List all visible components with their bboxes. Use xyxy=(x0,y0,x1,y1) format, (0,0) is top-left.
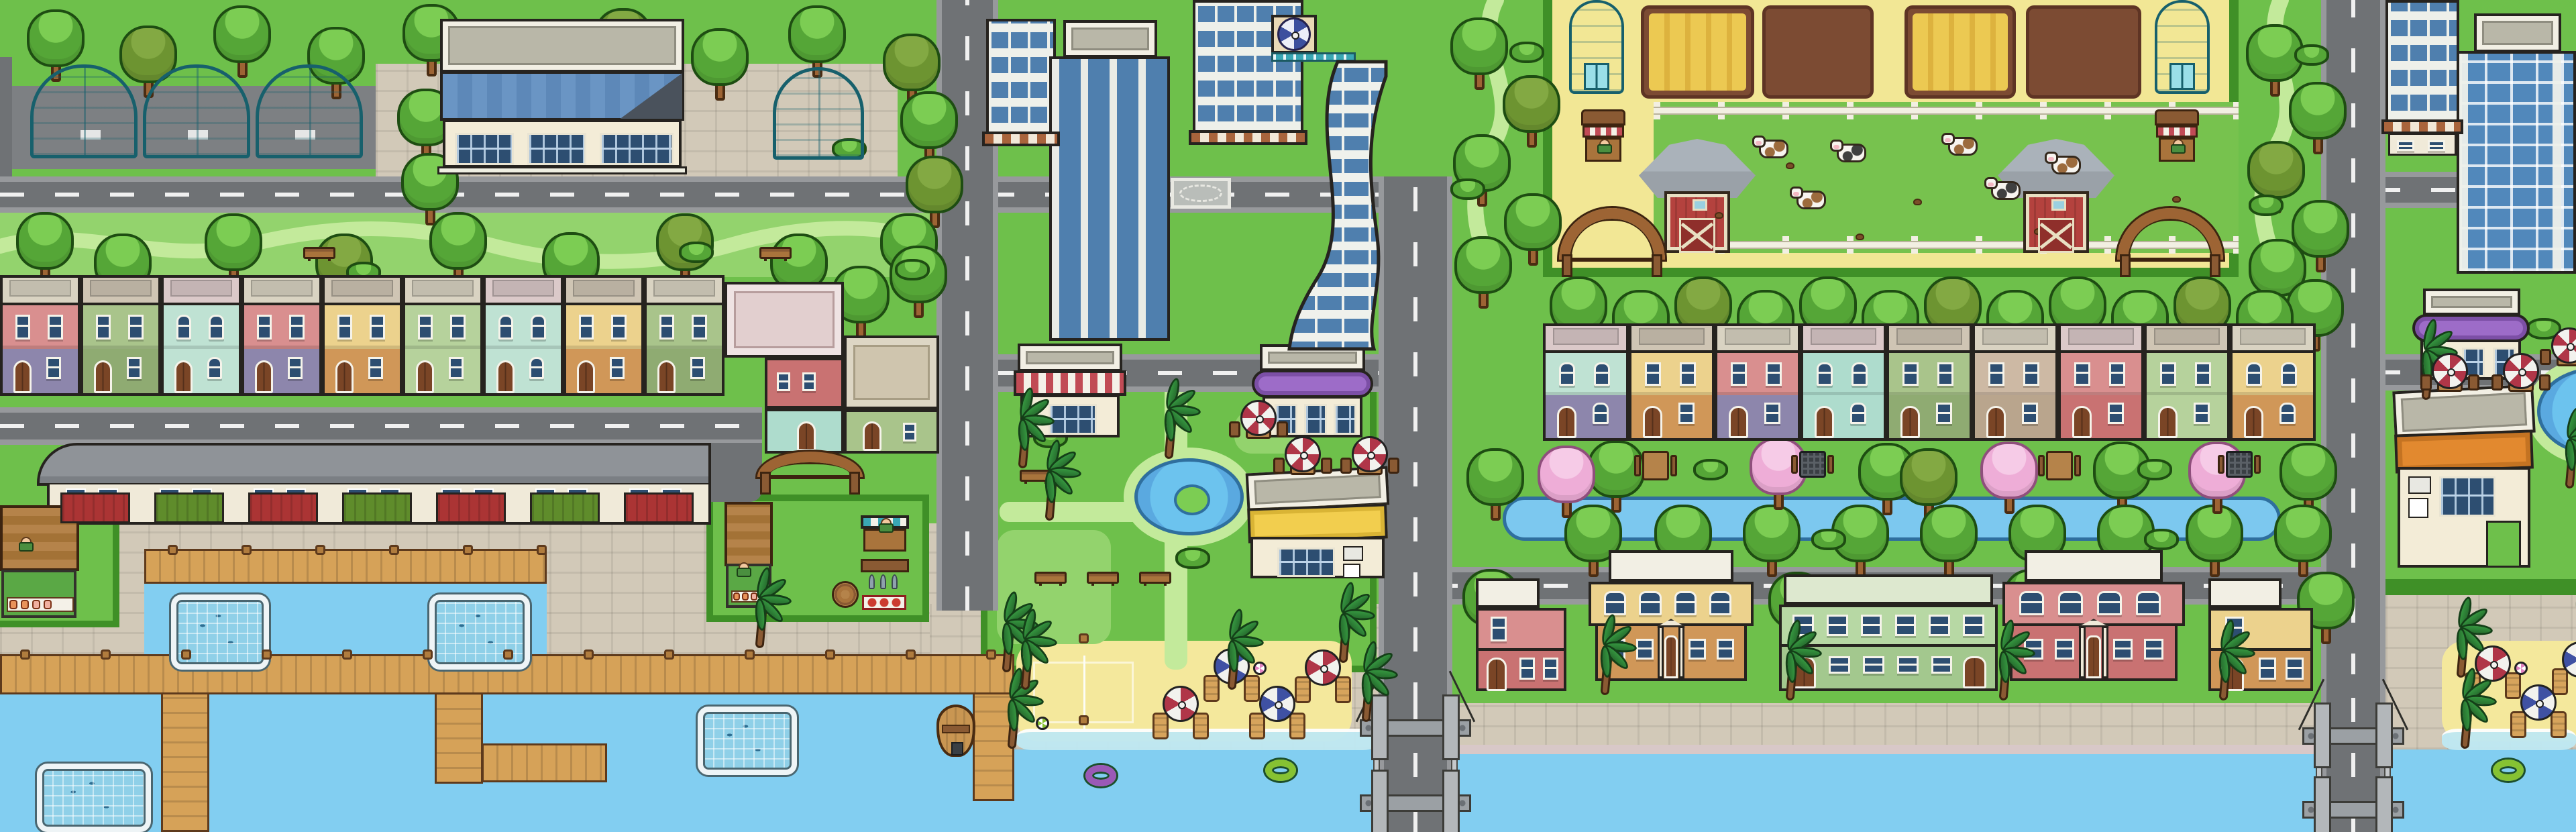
road-residential-west[interactable] xyxy=(0,407,762,445)
tree xyxy=(429,212,487,284)
cherry-tree xyxy=(1980,441,2038,514)
cafe-table[interactable] xyxy=(1273,436,1332,487)
townhouse-east[interactable] xyxy=(1801,323,1886,441)
pier-post xyxy=(20,649,30,660)
tree xyxy=(213,5,271,78)
cafe-umbrella xyxy=(2432,353,2468,389)
fish-pen[interactable] xyxy=(37,764,151,832)
palm-tree xyxy=(1135,389,1202,459)
bridge-pylon xyxy=(1360,794,1471,812)
pier-post xyxy=(423,649,433,660)
pier-post xyxy=(664,649,674,660)
cow-pie xyxy=(2172,196,2181,203)
townhouse-east[interactable] xyxy=(1715,323,1801,441)
townhouse-east[interactable] xyxy=(1972,323,2058,441)
palm-tree xyxy=(2190,631,2257,700)
barrel[interactable] xyxy=(832,581,859,608)
main-tower-sign xyxy=(1063,20,1157,58)
townhouse-east[interactable] xyxy=(2058,323,2144,441)
townhouse-north[interactable] xyxy=(241,275,322,396)
palm-tree xyxy=(2536,419,2576,488)
bench[interactable] xyxy=(303,247,335,259)
beach-ball[interactable] xyxy=(2514,662,2528,675)
bush xyxy=(1811,529,1846,550)
station-plinth xyxy=(437,166,687,174)
pier-post xyxy=(463,545,473,555)
curved-tower[interactable] xyxy=(1268,59,1397,352)
palm-tree xyxy=(2427,608,2494,678)
glass-tower-sign xyxy=(2474,13,2561,52)
warehouse-door[interactable] xyxy=(60,492,130,523)
waterfront-house[interactable] xyxy=(1476,578,1566,691)
bush xyxy=(1693,459,1728,480)
barn-west-door[interactable] xyxy=(1679,218,1715,253)
swim-ring[interactable] xyxy=(1265,760,1296,781)
tree xyxy=(1454,236,1512,309)
bridge-pylon xyxy=(2302,801,2404,819)
main-tower[interactable] xyxy=(1049,56,1170,341)
cow-pie xyxy=(1856,233,1864,240)
glass-canopy-2[interactable] xyxy=(143,64,250,158)
helipad xyxy=(1171,178,1231,209)
cow[interactable] xyxy=(2045,152,2084,178)
cafe-umbrella xyxy=(1352,436,1388,472)
townhouse-north[interactable] xyxy=(80,275,161,396)
bush xyxy=(1175,548,1210,569)
tree xyxy=(900,91,958,164)
tree xyxy=(1503,75,1560,148)
tree xyxy=(890,246,947,318)
roof-terrace-block-b[interactable] xyxy=(844,335,939,409)
swim-ring[interactable] xyxy=(1085,765,1116,786)
cow[interactable] xyxy=(1830,140,1869,166)
umbrella-canopy xyxy=(2520,684,2557,721)
city-map xyxy=(0,0,2576,832)
tree xyxy=(16,212,74,284)
pier-post xyxy=(503,649,513,660)
tree xyxy=(1920,505,1978,577)
greenhouse-tunnel[interactable] xyxy=(2155,0,2210,94)
park-pond xyxy=(1134,458,1244,535)
wheat-field xyxy=(1904,5,2016,99)
bush xyxy=(1450,178,1485,200)
shop-orange[interactable] xyxy=(2394,388,2534,582)
cow-pie xyxy=(1913,199,1922,205)
tree xyxy=(1450,17,1508,90)
palm-tree xyxy=(726,578,793,648)
glass-canopy-3[interactable] xyxy=(256,64,363,158)
vendor-teal-stall xyxy=(879,518,891,533)
cherry-tree xyxy=(1538,446,1595,518)
pier-post xyxy=(241,545,252,555)
pier-finger-2[interactable] xyxy=(435,692,483,784)
office-base-east xyxy=(2388,133,2457,156)
palm-tree xyxy=(1016,451,1083,521)
cafe-umbrella xyxy=(2551,327,2576,364)
station-hall[interactable] xyxy=(443,119,682,168)
station-roof[interactable] xyxy=(440,71,684,121)
picnic-table[interactable] xyxy=(1634,451,1677,480)
palm-tree xyxy=(2431,679,2498,749)
townhouse-north[interactable] xyxy=(161,275,241,396)
bbq-grill[interactable] xyxy=(1791,451,1834,478)
cabbage-plant xyxy=(2034,76,2061,103)
bench[interactable] xyxy=(1034,572,1067,584)
shop-red-sign xyxy=(1018,344,1122,372)
vendor-left-stall xyxy=(19,537,31,552)
office-tower-east[interactable] xyxy=(2385,0,2459,122)
townhouse-north[interactable] xyxy=(563,275,644,396)
pasture-fence-top xyxy=(1654,102,2239,119)
swim-ring[interactable] xyxy=(2493,760,2524,781)
cow-pie xyxy=(1715,212,1723,219)
pier-post xyxy=(906,649,916,660)
glass-tower[interactable] xyxy=(2457,51,2576,274)
tree xyxy=(2274,505,2332,577)
townhouse-east[interactable] xyxy=(2230,323,2316,441)
cow[interactable] xyxy=(1790,187,1829,213)
road-main-west[interactable] xyxy=(0,176,1452,213)
warehouse-door[interactable] xyxy=(154,492,224,523)
palm-tree xyxy=(991,620,1059,690)
bush xyxy=(1509,42,1544,63)
townhouse-east[interactable] xyxy=(2144,323,2230,441)
shop-purple-awning xyxy=(1252,370,1373,398)
bush xyxy=(2249,195,2284,216)
embankment-curb xyxy=(1452,745,2321,754)
cabbage-plant xyxy=(2068,76,2094,103)
bbq-grill[interactable] xyxy=(2218,451,2261,478)
warehouse-door[interactable] xyxy=(436,492,506,523)
townhouse-east[interactable] xyxy=(1886,323,1972,441)
warehouse-door[interactable] xyxy=(530,492,600,523)
pier-finger-2b[interactable] xyxy=(482,743,607,782)
picnic-table[interactable] xyxy=(2038,451,2081,480)
tree xyxy=(1504,193,1562,266)
vendor xyxy=(1597,139,1609,154)
cabbage-plant xyxy=(1770,76,1797,103)
rowboat[interactable] xyxy=(936,705,975,757)
office-awning-1 xyxy=(982,132,1060,146)
palm-tree xyxy=(2546,572,2576,641)
cluster-house-red[interactable] xyxy=(765,358,844,409)
cabbage-plant xyxy=(2101,76,2128,103)
palm-tree xyxy=(1756,631,1823,700)
tree xyxy=(2186,505,2243,577)
wooden-arch-gate[interactable] xyxy=(1559,208,1665,277)
townhouse-north[interactable] xyxy=(402,275,483,396)
bush xyxy=(679,242,714,263)
cabbage-plant xyxy=(1837,76,1864,103)
cafe-table[interactable] xyxy=(2540,327,2576,378)
bench[interactable] xyxy=(1087,572,1119,584)
cow[interactable] xyxy=(1941,133,1980,160)
pier-post xyxy=(262,649,272,660)
office-tower-small[interactable] xyxy=(986,19,1056,134)
office-awning-3 xyxy=(2381,119,2463,134)
warehouse-door[interactable] xyxy=(624,492,694,523)
fish-pen[interactable] xyxy=(429,594,530,670)
warehouse-door[interactable] xyxy=(248,492,318,523)
bush xyxy=(2294,44,2329,66)
farm-stand[interactable] xyxy=(2155,109,2199,162)
pier-post xyxy=(389,545,399,555)
cow[interactable] xyxy=(1752,136,1791,162)
farm-stand[interactable] xyxy=(1581,109,1625,162)
net-post xyxy=(1079,633,1089,643)
warehouse-roof xyxy=(37,443,711,486)
cafe-umbrella xyxy=(1285,436,1321,472)
bridge-pylon xyxy=(2302,727,2404,745)
townhouse-north[interactable] xyxy=(483,275,563,396)
townhouse-east[interactable] xyxy=(1629,323,1715,441)
beach-umbrella[interactable] xyxy=(2506,684,2571,741)
cafe-umbrella xyxy=(2503,353,2539,389)
pier-post xyxy=(101,649,111,660)
pier-post xyxy=(584,649,594,660)
tree xyxy=(691,28,749,101)
hanging-fish xyxy=(869,574,875,589)
townhouse-east[interactable] xyxy=(1543,323,1629,441)
hanging-fish xyxy=(892,574,898,589)
net-post xyxy=(1079,715,1089,725)
townhouse-north[interactable] xyxy=(644,275,724,396)
vendor xyxy=(2171,139,2183,154)
wooden-arch-gate[interactable] xyxy=(2117,208,2223,277)
vendor-market xyxy=(737,562,749,577)
bush xyxy=(895,259,930,280)
bush xyxy=(2144,529,2179,550)
boardwalk[interactable] xyxy=(144,549,547,584)
shop-purple-east-sign xyxy=(2423,289,2520,315)
pier-post xyxy=(537,545,547,555)
palm-tree xyxy=(1332,652,1399,722)
pier-post xyxy=(168,545,178,555)
east-embankment xyxy=(1452,703,2321,747)
pier-post xyxy=(181,649,191,660)
cabbage-plant xyxy=(1804,76,1831,103)
pier-post xyxy=(825,649,835,660)
townhouse-north[interactable] xyxy=(322,275,402,396)
palm-tree xyxy=(1970,631,2037,700)
townhouse-north[interactable] xyxy=(0,275,80,396)
cow[interactable] xyxy=(1984,177,2023,204)
warehouse-door[interactable] xyxy=(342,492,412,523)
roof-terrace-block-a[interactable] xyxy=(724,282,844,358)
glass-canopy-1[interactable] xyxy=(30,64,138,158)
cafe-table[interactable] xyxy=(1340,436,1399,487)
rooftop-umbrella xyxy=(1277,17,1311,51)
umbrella-canopy xyxy=(1163,686,1199,722)
glass-canopy-4[interactable] xyxy=(773,67,864,160)
palm-tree xyxy=(1571,625,1638,695)
pier-finger-1[interactable] xyxy=(161,692,209,832)
hanging-fish xyxy=(880,574,886,589)
wooden-arch-gate[interactable] xyxy=(757,452,863,495)
pier-post xyxy=(745,649,755,660)
umbrella-canopy xyxy=(1259,686,1295,722)
palm-tree xyxy=(1198,620,1265,690)
cafe-umbrella xyxy=(1240,400,1277,436)
cafe-table[interactable] xyxy=(2420,353,2479,404)
cluster-house-teal[interactable] xyxy=(765,409,844,454)
wheat-field xyxy=(1641,5,1754,99)
bench[interactable] xyxy=(759,247,792,259)
bush xyxy=(2137,459,2172,480)
tree xyxy=(1466,448,1524,521)
pier-post xyxy=(315,545,325,555)
road-edge-stub xyxy=(0,57,12,178)
cluster-house-sage[interactable] xyxy=(844,409,939,454)
greenhouse-tunnel[interactable] xyxy=(1569,0,1624,94)
bench[interactable] xyxy=(1139,572,1171,584)
barn-east-door[interactable] xyxy=(2038,218,2074,253)
cow-pie xyxy=(1786,162,1794,169)
station-sign-band xyxy=(440,19,684,72)
fish-pen[interactable] xyxy=(698,707,797,775)
pier-post xyxy=(342,649,352,660)
